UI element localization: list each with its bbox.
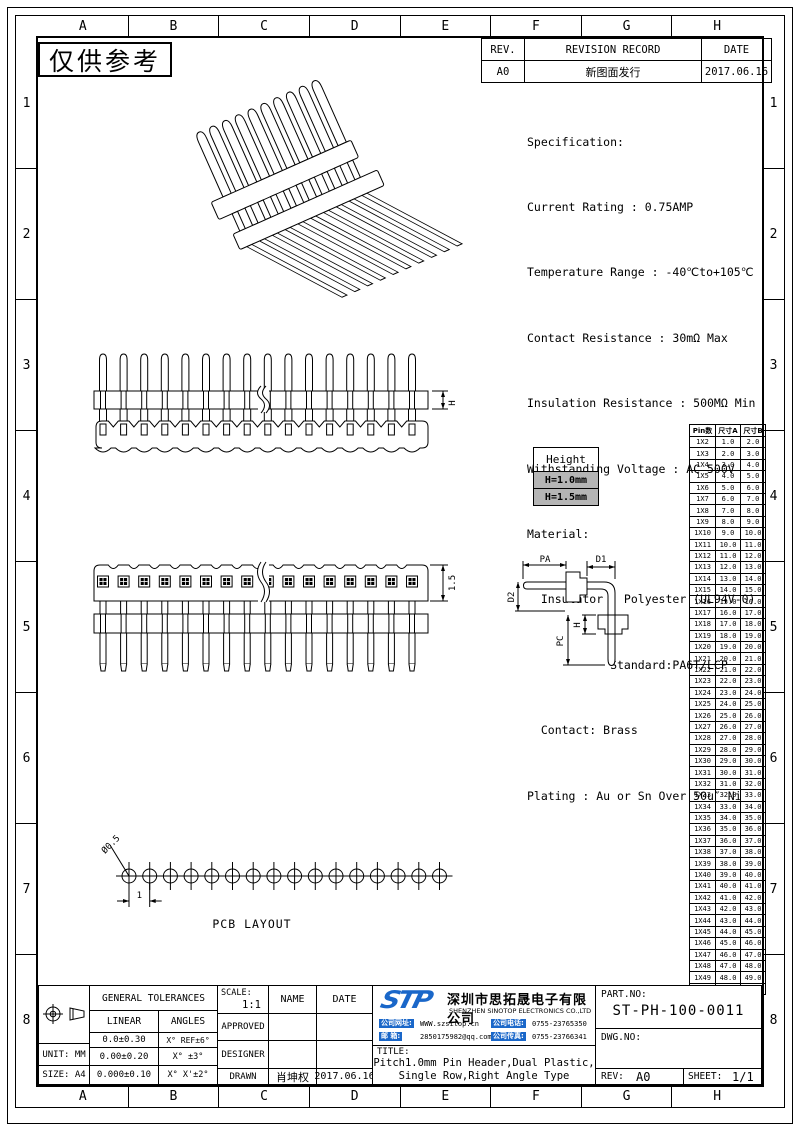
website-label: 公司网址: xyxy=(379,1019,414,1028)
grid-number: 1 xyxy=(15,38,38,168)
upper-insulator-body xyxy=(566,572,587,602)
size-table-row: 1X2928.029.0 xyxy=(690,744,766,755)
ruler-bottom: ABCDEFGH xyxy=(38,1085,762,1108)
size-table-header-row: Pin数 尺寸A 尺寸B xyxy=(690,425,766,437)
angles-header: ANGLES xyxy=(158,1010,218,1033)
grid-letter: A xyxy=(38,1085,128,1108)
height-option-2: H=1.5mm xyxy=(533,489,599,506)
size-table-row: 1X4746.047.0 xyxy=(690,949,766,960)
size-table-row: 1X3130.031.0 xyxy=(690,767,766,778)
reference-only-stamp: 仅供参考 xyxy=(38,42,172,77)
phone-value: 0755-23765350 xyxy=(532,1020,587,1029)
top-view-svg: 1.5 xyxy=(86,557,464,684)
size-table-row: 1X3635.036.0 xyxy=(690,824,766,835)
scale-value: 1:1 xyxy=(242,999,261,1011)
size-table-row: 1X3433.034.0 xyxy=(690,801,766,812)
title-label: TITLE: xyxy=(377,1047,410,1057)
isometric-view-svg xyxy=(193,97,438,287)
name-header: NAME xyxy=(268,985,317,1014)
linear-tol-2: 0.00±0.20 xyxy=(89,1047,159,1066)
front-view: H xyxy=(86,345,464,465)
reference-only-text: 仅供参考 xyxy=(49,42,161,78)
date-header: DATE xyxy=(316,985,373,1014)
size-table-row: 1X4039.040.0 xyxy=(690,869,766,880)
engineering-drawing-sheet: { "watermark": "仅供参考", "grid": { "cols":… xyxy=(0,0,800,1131)
spec-line: Specification: xyxy=(527,132,763,154)
grid-letter: B xyxy=(128,1085,219,1108)
title-line-1: Pitch1.0mm Pin Header,Dual Plastic, xyxy=(373,1057,595,1069)
part-no-cell: PART.NO: ST-PH-100-0011 xyxy=(595,985,762,1029)
size-table-row: 1X2221.022.0 xyxy=(690,664,766,675)
size-table-row: 1X43.04.0 xyxy=(690,459,766,470)
linear-tol-1: 0.0±0.30 xyxy=(89,1032,159,1048)
size-table-row: 1X65.06.0 xyxy=(690,482,766,493)
grid-number: 2 xyxy=(762,168,785,299)
spec-line: Insulation Resistance : 500MΩ Min xyxy=(527,393,763,415)
size-table: Pin数 尺寸A 尺寸B 1X21.02.01X32.03.01X43.04.0… xyxy=(689,424,766,995)
size-table-row: 1X76.07.0 xyxy=(690,493,766,504)
size-col-b: 尺寸B xyxy=(741,425,766,437)
grid-number: 5 xyxy=(15,561,38,692)
size-table-row: 1X87.08.0 xyxy=(690,505,766,516)
sheet-size-cell: SIZE: A4 xyxy=(38,1065,90,1085)
spec-line: Current Rating : 0.75AMP xyxy=(527,197,763,219)
size-table-row: 1X4342.043.0 xyxy=(690,904,766,915)
grid-letter: H xyxy=(671,15,762,38)
angle-tol-2: X° ±3° xyxy=(158,1047,218,1066)
designer-label: DESIGNER xyxy=(217,1040,269,1069)
size-table-row: 1X1211.012.0 xyxy=(690,550,766,561)
size-col-pins: Pin数 xyxy=(690,425,716,437)
spec-line: Contact Resistance : 30mΩ Max xyxy=(527,328,763,350)
size-table-row: 1X1817.018.0 xyxy=(690,619,766,630)
size-table-row: 1X2019.020.0 xyxy=(690,642,766,653)
revision-date-header: DATE xyxy=(702,39,772,61)
dim-label-1-5: 1.5 xyxy=(448,575,458,591)
dim-label-pitch: 1 xyxy=(137,891,142,901)
linear-tol-3: 0.000±0.10 xyxy=(89,1065,159,1085)
height-box-title: Height xyxy=(533,447,599,472)
angle-tol-1: X° REF±6° xyxy=(158,1032,218,1048)
size-table-row: 1X1615.016.0 xyxy=(690,596,766,607)
size-table-row: 1X4443.044.0 xyxy=(690,915,766,926)
company-name-en: SHENZHEN SINOTOP ELECTRONICS CO.,LTD xyxy=(449,1007,591,1015)
grid-number: 7 xyxy=(15,823,38,954)
size-table-row: 1X4645.046.0 xyxy=(690,938,766,949)
size-table-row: 1X2524.025.0 xyxy=(690,698,766,709)
grid-letter: G xyxy=(581,1085,672,1108)
approved-label: APPROVED xyxy=(217,1013,269,1041)
grid-number: 2 xyxy=(15,168,38,299)
size-table-row: 1X4140.041.0 xyxy=(690,881,766,892)
rev-cell: REV: A0 xyxy=(595,1068,684,1085)
dim-label-pc: PC xyxy=(556,636,566,647)
sheet-value: 1/1 xyxy=(732,1070,754,1084)
grid-number: 4 xyxy=(15,430,38,561)
projection-symbol-cell xyxy=(38,985,90,1044)
dwg-no-cell: DWG.NO: xyxy=(595,1028,762,1069)
ruler-left: 12345678 xyxy=(15,38,38,1085)
grid-letter: F xyxy=(490,1085,581,1108)
size-table-row: 1X1716.017.0 xyxy=(690,607,766,618)
drawn-name: 肖坤权 xyxy=(268,1068,317,1085)
revision-rev-header: REV. xyxy=(482,39,525,61)
title-line-2: Single Row,Right Angle Type xyxy=(373,1070,595,1082)
size-table-row: 1X2827.028.0 xyxy=(690,733,766,744)
size-table-row: 1X32.03.0 xyxy=(690,448,766,459)
grid-letter: G xyxy=(581,15,672,38)
pcb-layout-caption: PCB LAYOUT xyxy=(212,917,291,931)
side-profile-view: PA D1 D2 H PC xyxy=(505,543,670,675)
sheet-cell: SHEET: 1/1 xyxy=(683,1068,762,1085)
grid-letter: D xyxy=(309,1085,400,1108)
size-table-row: 1X3029.030.0 xyxy=(690,755,766,766)
size-table-row: 1X2322.023.0 xyxy=(690,676,766,687)
height-option-box: Height H=1.0mm H=1.5mm xyxy=(533,447,599,506)
dwg-no-label: DWG.NO: xyxy=(601,1032,641,1043)
grid-letter: B xyxy=(128,15,219,38)
dim-label-hole-dia: Ø0.5 xyxy=(99,833,122,856)
pcb-layout-svg: Ø0.51PCB LAYOUT xyxy=(97,828,465,938)
sheet-label: SHEET: xyxy=(688,1071,722,1082)
revision-table: REV. REVISION RECORD DATE A0 新图面发行 2017.… xyxy=(481,38,772,83)
angle-tol-3: X° X'±2° xyxy=(158,1065,218,1085)
front-view-svg: H xyxy=(86,345,464,465)
revision-rev: A0 xyxy=(482,61,525,83)
phone-label: 公司电话: xyxy=(491,1019,526,1028)
revision-header-row: REV. REVISION RECORD DATE xyxy=(482,39,772,61)
scale-cell: SCALE: 1:1 xyxy=(217,985,269,1014)
grid-number: 3 xyxy=(15,299,38,430)
size-table-row: 1X4544.045.0 xyxy=(690,926,766,937)
email-value: 2850175982@qq.com xyxy=(420,1033,492,1042)
grid-letter: E xyxy=(400,15,491,38)
dim-label-d2: D2 xyxy=(507,592,517,603)
grid-number: 3 xyxy=(762,299,785,430)
rev-label: REV: xyxy=(601,1071,624,1082)
grid-number: 8 xyxy=(15,954,38,1085)
dim-label-h: H xyxy=(573,622,583,627)
email-label: 邮 箱: xyxy=(379,1032,402,1041)
designer-name-cell xyxy=(268,1040,317,1069)
company-cell: STP 深圳市思拓晟电子有限公司 SHENZHEN SINOTOP ELECTR… xyxy=(372,985,596,1046)
unit-cell: UNIT: MM xyxy=(38,1043,90,1066)
size-table-row: 1X1514.015.0 xyxy=(690,585,766,596)
part-no-label: PART.NO: xyxy=(601,989,647,1000)
revision-record-header: REVISION RECORD xyxy=(525,39,702,61)
projection-angle-icon xyxy=(41,1003,89,1025)
dim-label-d1: D1 xyxy=(596,555,607,565)
size-table-row: 1X98.09.0 xyxy=(690,516,766,527)
tolerances-header: GENERAL TOLERANCES xyxy=(89,985,218,1011)
website-value: WWW.szsitop.cn xyxy=(420,1020,479,1029)
size-table-row: 1X2726.027.0 xyxy=(690,721,766,732)
size-table-row: 1X2423.024.0 xyxy=(690,687,766,698)
size-table-row: 1X4241.042.0 xyxy=(690,892,766,903)
size-table-row: 1X3837.038.0 xyxy=(690,847,766,858)
rev-value: A0 xyxy=(636,1070,650,1084)
approved-name-cell xyxy=(268,1013,317,1041)
size-table-row: 1X2625.026.0 xyxy=(690,710,766,721)
dim-label-pa: PA xyxy=(540,555,551,565)
stp-logo: STP xyxy=(378,988,433,1012)
grid-letter: A xyxy=(38,15,128,38)
lower-insulator-body xyxy=(598,615,628,634)
size-table-row: 1X4948.049.0 xyxy=(690,972,766,983)
size-table-row: 1X3736.037.0 xyxy=(690,835,766,846)
size-table-row: 1X1918.019.0 xyxy=(690,630,766,641)
linear-header: LINEAR xyxy=(89,1010,159,1033)
size-table-row: 1X3938.039.0 xyxy=(690,858,766,869)
ruler-top: ABCDEFGH xyxy=(38,15,762,38)
spec-line: Temperature Range : -40℃to+105℃ xyxy=(527,262,763,284)
fax-label: 公司传真: xyxy=(491,1032,526,1041)
size-table-row: 1X1110.011.0 xyxy=(690,539,766,550)
size-col-a: 尺寸A xyxy=(716,425,741,437)
revision-row: A0 新图面发行 2017.06.16 xyxy=(482,61,772,83)
designer-date-cell xyxy=(316,1040,373,1069)
size-table-row: 1X1413.014.0 xyxy=(690,573,766,584)
size-table-row: 1X54.05.0 xyxy=(690,471,766,482)
grid-letter: C xyxy=(218,1085,309,1108)
side-profile-svg: PA D1 D2 H PC xyxy=(505,543,670,675)
size-table-row: 1X109.010.0 xyxy=(690,528,766,539)
spacer-strip xyxy=(94,614,428,633)
drawn-date: 2017.06.16 xyxy=(316,1068,373,1085)
height-option-1: H=1.0mm xyxy=(533,472,599,489)
size-table-row: 1X3534.035.0 xyxy=(690,812,766,823)
size-table-row: 1X3332.033.0 xyxy=(690,790,766,801)
grid-letter: H xyxy=(671,1085,762,1108)
revision-date: 2017.06.16 xyxy=(702,61,772,83)
pcb-layout-view: Ø0.51PCB LAYOUT xyxy=(97,828,465,938)
scale-label: SCALE: xyxy=(221,988,252,998)
size-table-row: 1X21.02.0 xyxy=(690,437,766,448)
top-view: 1.5 xyxy=(86,557,464,684)
grid-number: 6 xyxy=(15,692,38,823)
approved-date-cell xyxy=(316,1013,373,1041)
size-table-row: 1X2120.021.0 xyxy=(690,653,766,664)
drawn-label: DRAWN xyxy=(217,1068,269,1085)
drawing-title-cell: TITLE: Pitch1.0mm Pin Header,Dual Plasti… xyxy=(372,1045,596,1085)
size-table-body: 1X21.02.01X32.03.01X43.04.01X54.05.01X65… xyxy=(690,437,766,995)
grid-letter: E xyxy=(400,1085,491,1108)
grid-letter: D xyxy=(309,15,400,38)
revision-record: 新图面发行 xyxy=(525,61,702,83)
grid-letter: C xyxy=(218,15,309,38)
dim-label-h: H xyxy=(448,400,458,405)
grid-letter: F xyxy=(490,15,581,38)
fax-value: 0755-23766341 xyxy=(532,1033,587,1042)
size-table-row: 1X1312.013.0 xyxy=(690,562,766,573)
size-table-row: 1X3231.032.0 xyxy=(690,778,766,789)
isometric-view xyxy=(193,97,438,287)
part-no-value: ST-PH-100-0011 xyxy=(596,1003,761,1019)
size-table-row: 1X4847.048.0 xyxy=(690,960,766,971)
